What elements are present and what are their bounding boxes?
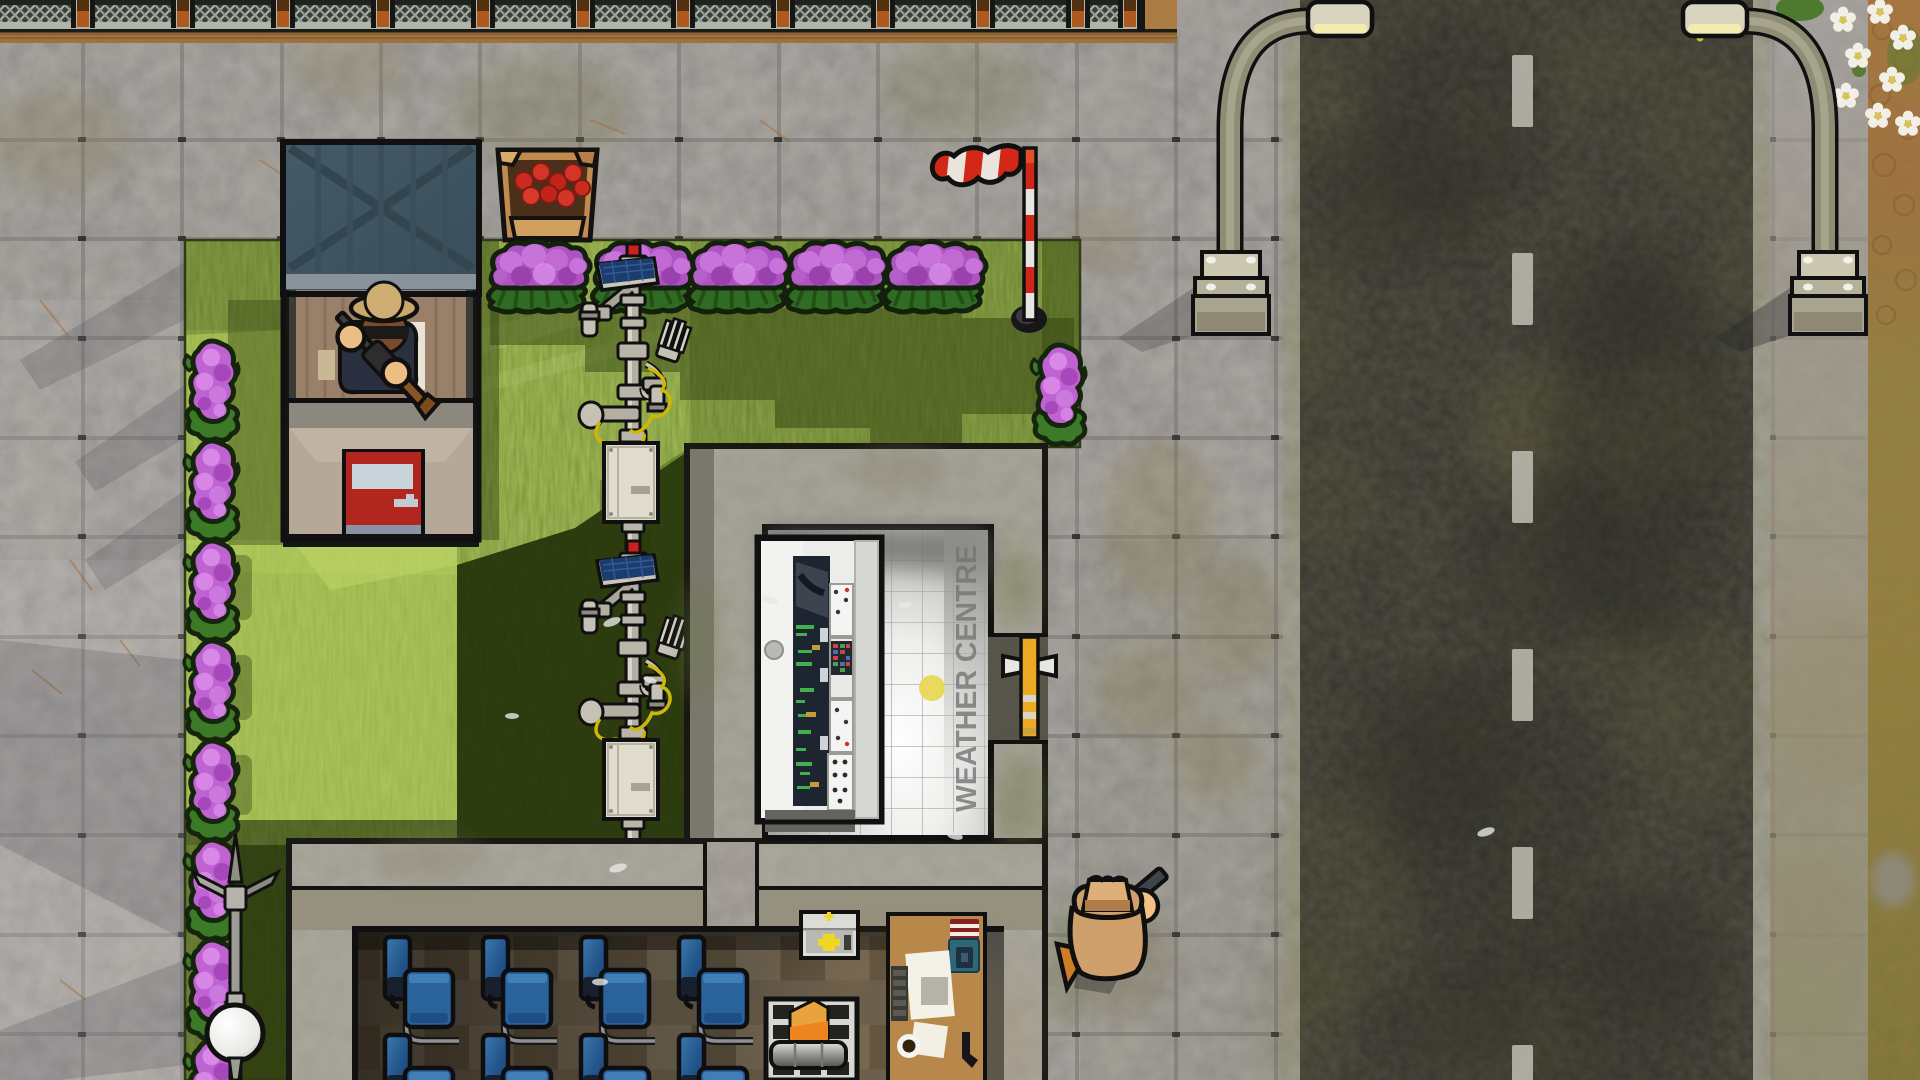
svg-text:WEATHER CENTRE: WEATHER CENTRE <box>951 545 983 812</box>
